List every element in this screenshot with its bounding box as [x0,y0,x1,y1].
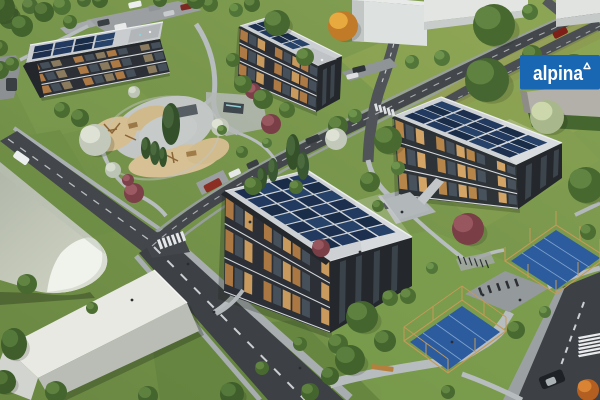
svg-text:alpina: alpina [533,63,584,85]
